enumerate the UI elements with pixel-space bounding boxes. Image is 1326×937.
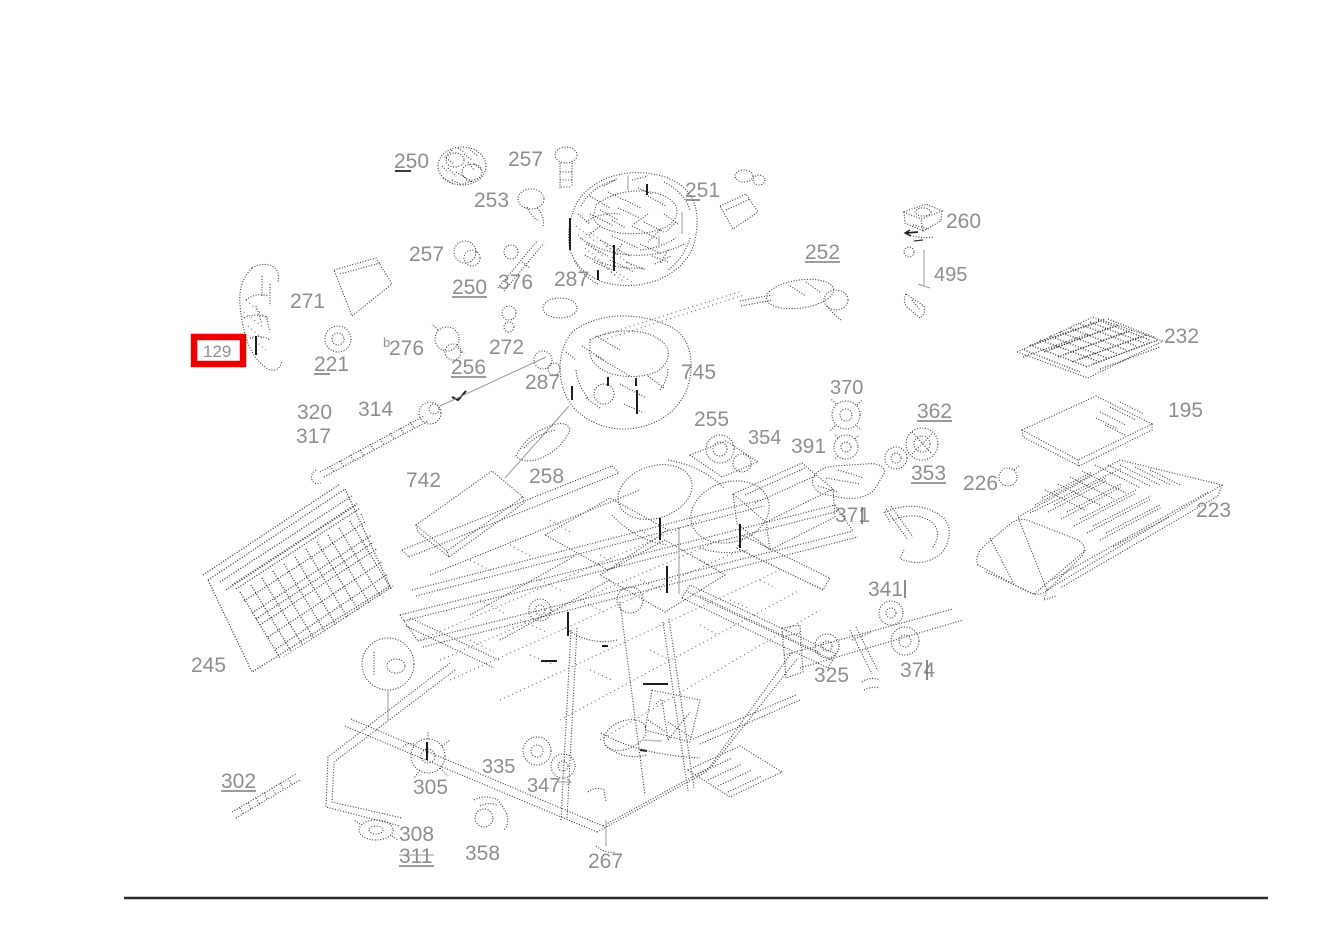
svg-text:370: 370 <box>830 377 863 399</box>
svg-text:314: 314 <box>358 398 393 421</box>
svg-text:311: 311 <box>399 845 432 868</box>
svg-text:267: 267 <box>588 850 623 873</box>
svg-text:374: 374 <box>900 659 935 682</box>
svg-text:317: 317 <box>296 425 331 448</box>
svg-text:272: 272 <box>489 336 524 359</box>
svg-text:371: 371 <box>835 504 870 527</box>
svg-text:335: 335 <box>482 756 515 778</box>
svg-text:745: 745 <box>681 361 716 384</box>
svg-text:325: 325 <box>814 664 849 687</box>
svg-text:255: 255 <box>694 408 729 431</box>
svg-text:250: 250 <box>452 276 487 299</box>
svg-text:358: 358 <box>465 842 500 865</box>
svg-text:226: 226 <box>963 472 998 495</box>
svg-text:287: 287 <box>554 268 589 291</box>
svg-text:305: 305 <box>413 776 448 799</box>
svg-text:391: 391 <box>791 435 826 458</box>
svg-text:223: 223 <box>1196 499 1231 522</box>
svg-text:353: 353 <box>911 462 946 485</box>
svg-text:245: 245 <box>191 654 226 677</box>
svg-text:742: 742 <box>406 469 441 492</box>
svg-text:257: 257 <box>409 243 444 266</box>
svg-text:362: 362 <box>917 400 952 423</box>
svg-text:253: 253 <box>474 189 509 212</box>
svg-text:257: 257 <box>508 148 543 171</box>
svg-text:221: 221 <box>314 353 349 376</box>
svg-text:232: 232 <box>1164 325 1199 348</box>
svg-text:250: 250 <box>394 150 429 173</box>
svg-text:258: 258 <box>529 465 564 488</box>
svg-text:260: 260 <box>946 210 981 233</box>
svg-text:251: 251 <box>685 179 720 202</box>
svg-text:495: 495 <box>934 264 967 286</box>
svg-text:341: 341 <box>868 578 903 601</box>
svg-text:195: 195 <box>1168 399 1203 422</box>
svg-text:320: 320 <box>297 401 332 424</box>
svg-text:302: 302 <box>221 770 256 793</box>
svg-text:376: 376 <box>498 271 533 294</box>
svg-text:256: 256 <box>451 356 486 379</box>
svg-text:276: 276 <box>389 337 424 360</box>
svg-text:347: 347 <box>527 775 560 797</box>
svg-text:308: 308 <box>399 823 434 846</box>
svg-text:271: 271 <box>290 290 325 313</box>
svg-text:287: 287 <box>525 371 560 394</box>
svg-text:129: 129 <box>203 342 231 361</box>
svg-text:354: 354 <box>748 427 781 449</box>
svg-text:252: 252 <box>805 241 840 264</box>
